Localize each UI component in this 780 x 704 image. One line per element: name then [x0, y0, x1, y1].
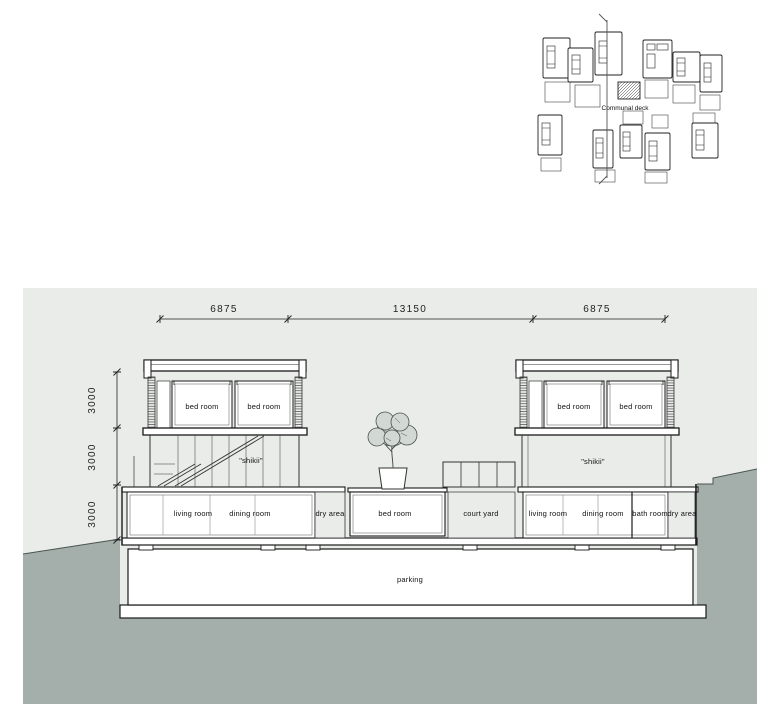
room-label-dining-room-left: dining room	[229, 509, 270, 518]
room-label-dry-area-right: dry area	[667, 509, 697, 518]
plan-module	[543, 38, 570, 78]
plan-module	[595, 32, 622, 75]
plan-module	[593, 130, 613, 168]
room-label-bed-room-left-1: bed room	[185, 402, 218, 411]
screenshot-root: Communal deck	[0, 0, 780, 704]
room-label-shikii-left: "shikii"	[239, 456, 263, 465]
dim-label-middle-span: 13150	[393, 304, 427, 315]
dim-label-level-2: 3000	[87, 443, 98, 470]
building-section-drawing: parking	[23, 288, 757, 704]
right-building	[515, 360, 679, 487]
dim-label-right-span: 6875	[583, 304, 610, 315]
room-label-living-room-left: living room	[174, 509, 212, 518]
plan-module	[620, 125, 642, 158]
room-label-bath-room: bath room	[632, 509, 668, 518]
left-building	[134, 360, 307, 487]
plan-module	[700, 55, 722, 92]
plan-module	[673, 52, 700, 82]
plan-entry-module	[618, 82, 640, 99]
room-label-shikii-right: "shikii"	[581, 457, 605, 466]
room-label-dining-room-right: dining room	[582, 509, 623, 518]
communal-deck-label: Communal deck	[602, 105, 650, 112]
room-label-court-yard: court yard	[463, 509, 498, 518]
room-label-dry-area-left: dry area	[315, 509, 345, 518]
plan-module	[568, 48, 593, 82]
dim-label-level-3: 3000	[87, 386, 98, 413]
tree	[368, 412, 417, 489]
plan-module	[692, 123, 718, 158]
room-label-bed-room-right-1: bed room	[557, 402, 590, 411]
site-plan-thumbnail: Communal deck	[533, 12, 728, 187]
dim-label-level-1: 3000	[87, 500, 98, 527]
plan-module	[645, 133, 670, 170]
room-label-bed-room-right-2: bed room	[619, 402, 652, 411]
room-label-bed-room-middle: bed room	[378, 509, 411, 518]
room-label-bed-room-left-2: bed room	[247, 402, 280, 411]
plan-module	[538, 115, 562, 155]
room-label-parking: parking	[397, 575, 423, 584]
dim-label-left-span: 6875	[210, 304, 237, 315]
section-panel: parking	[23, 288, 757, 704]
plan-module-kitchen	[643, 40, 672, 78]
room-label-living-room-right: living room	[529, 509, 567, 518]
courtyard-railing	[443, 462, 515, 487]
